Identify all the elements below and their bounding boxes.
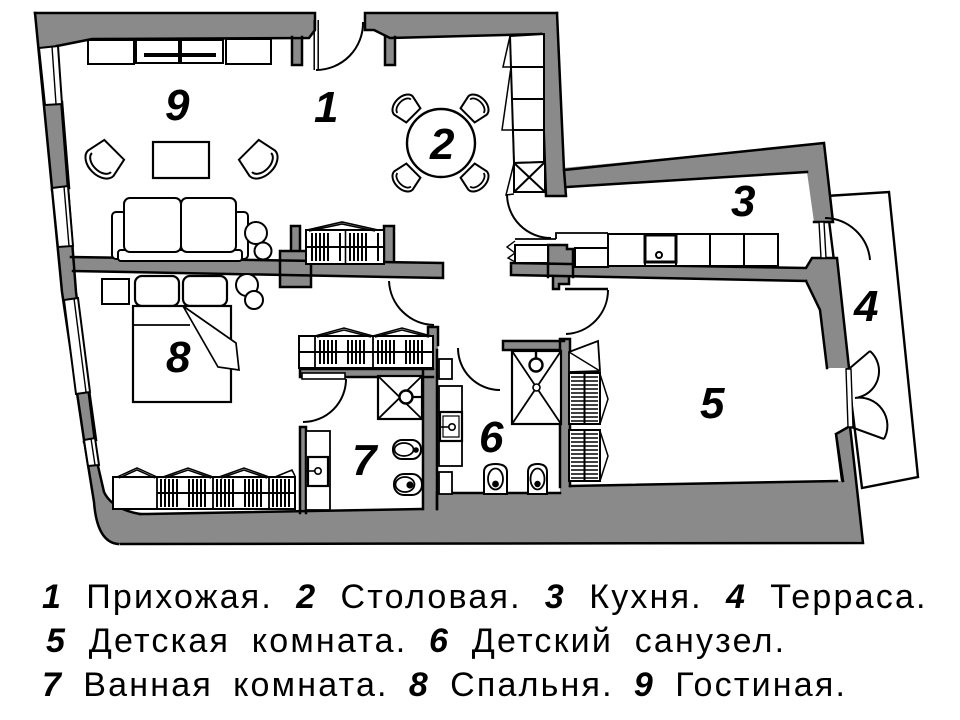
svg-text:1: 1 bbox=[314, 83, 338, 132]
svg-text:7: 7 bbox=[352, 436, 379, 485]
svg-text:6: 6 bbox=[479, 413, 504, 462]
svg-text:1 Прихожая. 2 Столовая. 3 Ку: 1 Прихожая. 2 Столовая. 3 Кухня. 4 Терра… bbox=[42, 578, 928, 616]
svg-text:5 Детская комната. 6 Детский с: 5 Детская комната. 6 Детский санузел. bbox=[46, 622, 786, 660]
svg-text:8: 8 bbox=[166, 333, 191, 382]
svg-text:9: 9 bbox=[165, 81, 190, 130]
svg-text:7 Ванная комната. 8 Спальня.: 7 Ванная комната. 8 Спальня. 9 Гостиная. bbox=[42, 666, 847, 704]
svg-text:2: 2 bbox=[429, 120, 455, 169]
svg-text:4: 4 bbox=[853, 282, 878, 331]
svg-text:3: 3 bbox=[731, 177, 755, 226]
svg-text:5: 5 bbox=[700, 379, 725, 428]
